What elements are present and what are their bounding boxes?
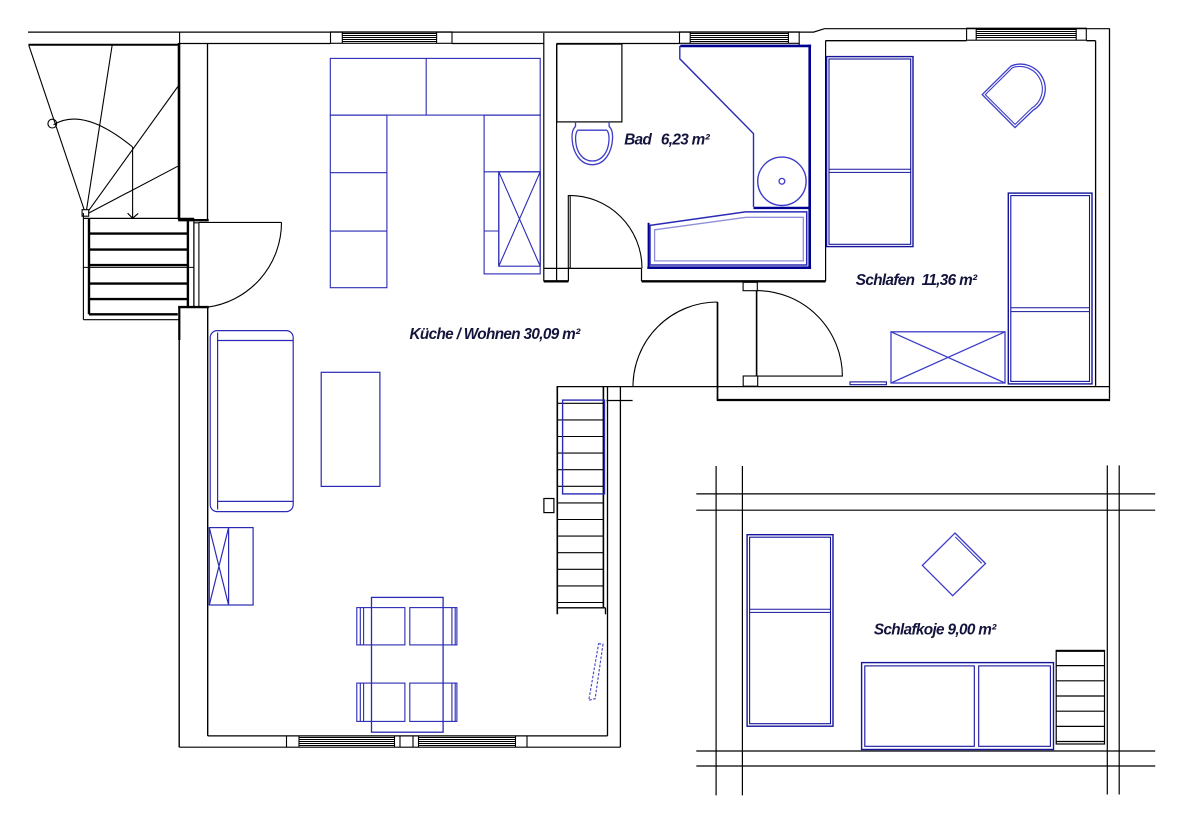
svg-text:6,23 m²: 6,23 m² [661, 131, 711, 148]
svg-text:Küche / Wohnen 30,09 m²: Küche / Wohnen 30,09 m² [410, 326, 582, 343]
svg-text:Schlafen: Schlafen [856, 272, 915, 289]
svg-text:Bad: Bad [624, 131, 652, 148]
svg-text:11,36 m²: 11,36 m² [922, 272, 978, 289]
svg-text:Schlafkoje 9,00 m²: Schlafkoje 9,00 m² [874, 622, 997, 639]
